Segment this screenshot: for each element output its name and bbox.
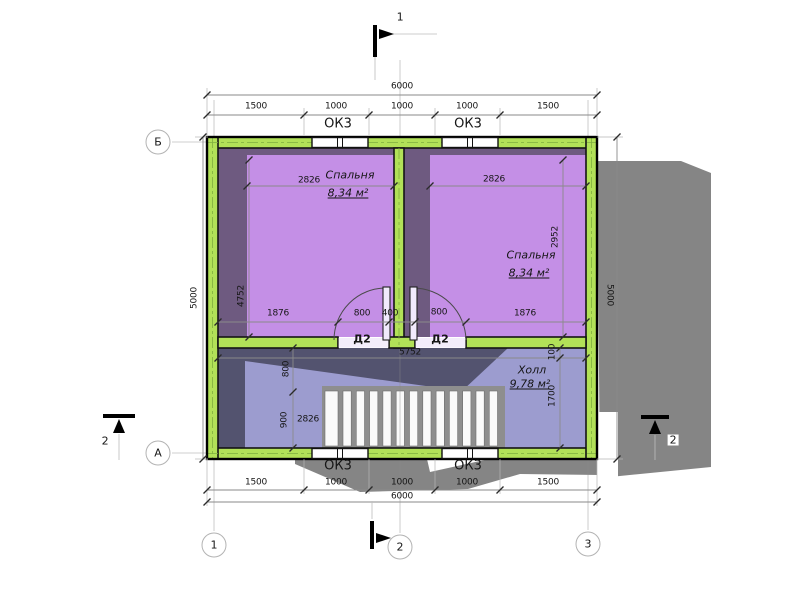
dim-hall-span: 5752 [399,349,421,358]
dim-top-seg-1: 1500 [245,103,267,112]
dim-wall-offset: 100 [549,344,558,361]
dim-door-row-5: 1876 [514,310,536,319]
dim-top-seg-5: 1500 [537,103,559,112]
dim-bottom-seg-5: 1500 [537,479,559,488]
dim-bottom-seg-2: 1000 [325,479,347,488]
dim-bottom-seg-3: 1000 [391,479,413,488]
window-top-right [442,138,498,148]
dim-bottom-total: 6000 [391,493,413,502]
dim-top-total: 6000 [391,83,413,92]
section-label-top: 1 [397,12,404,23]
window-tag-bottom-right: ОК3 [454,460,482,473]
dim-door-row-1: 1876 [267,310,289,319]
axis-bubble-2: 2 [388,535,413,560]
door-tag-left: Д2 [353,334,370,345]
dim-right-height: 5000 [605,284,614,306]
dim-door-row-3: 400 [382,310,399,319]
dim-stair-lower: 900 [281,412,290,429]
section-label-left: 2 [102,436,109,447]
dim-bed-right-depth: 2952 [552,226,561,248]
room-name-hall: Холл [518,365,546,376]
room-area-bedroom-left: 8,34 м² [328,188,369,199]
dim-hall-depth: 1700 [549,385,558,407]
axis-bubble-a: А [146,441,171,466]
staircase [322,386,505,448]
dim-stair-width: 2826 [297,416,319,425]
dim-bed-right-width: 2826 [483,176,505,185]
section-label-right: 2 [668,435,679,446]
window-top-left [312,138,368,148]
dim-top-seg-2: 1000 [325,103,347,112]
window-bottom-left [312,449,368,459]
dim-stair-upper: 800 [283,361,292,378]
dim-door-row-2: 800 [354,310,371,319]
dim-bed-left-width: 2826 [298,177,320,186]
dim-bed-left-depth: 4752 [238,285,247,307]
dim-door-row-4: 800 [431,309,448,318]
door-tag-right: Д2 [431,334,448,345]
dim-top-seg-3: 1000 [391,103,413,112]
axis-bubble-3: 3 [576,532,601,557]
window-tag-top-left: ОК3 [324,118,352,131]
room-area-bedroom-right: 8,34 м² [509,268,550,279]
axis-bubble-1: 1 [202,533,227,558]
axis-bubble-b: Б [146,130,171,155]
room-name-bedroom-right: Спальня [507,250,556,261]
dim-bottom-seg-4: 1000 [456,479,478,488]
dim-bottom-seg-1: 1500 [245,479,267,488]
floor-plan-canvas: 1 2 2 6000 1500 1000 1000 1000 1500 ОК3 … [0,0,800,600]
window-tag-top-right: ОК3 [454,118,482,131]
window-tag-bottom-left: ОК3 [324,460,352,473]
room-area-hall: 9,78 м² [510,379,551,390]
dim-top-seg-4: 1000 [456,103,478,112]
section-marker-top [373,25,437,80]
dim-left-height: 5000 [191,287,200,309]
room-name-bedroom-left: Спальня [326,170,375,181]
window-bottom-right [442,449,498,459]
